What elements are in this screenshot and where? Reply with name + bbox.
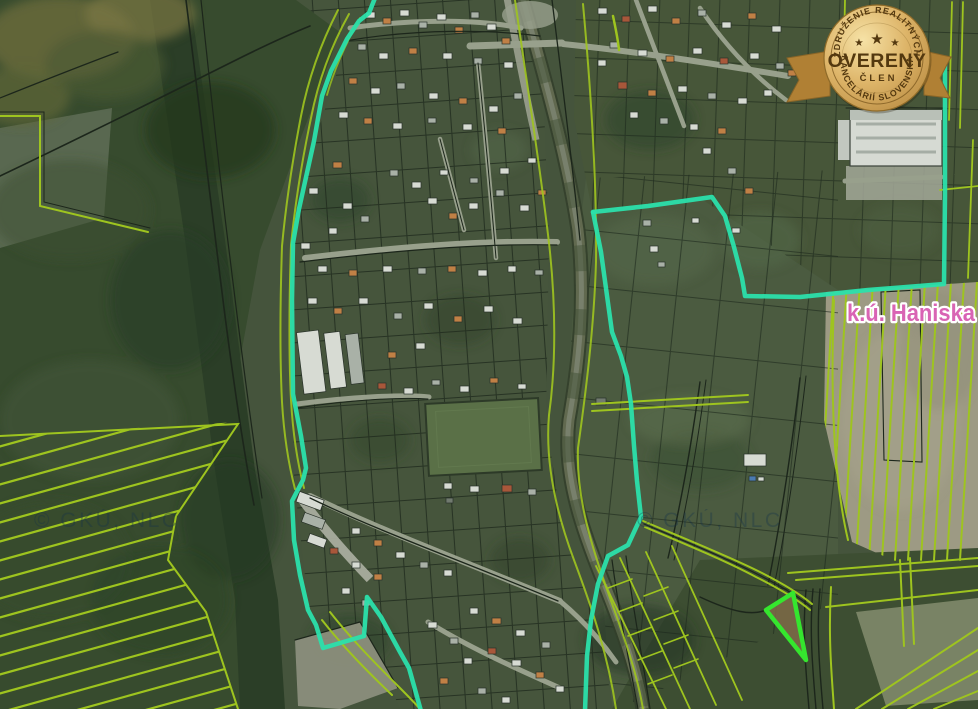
star-icon: ★ [870, 31, 883, 48]
star-icon: ★ [854, 37, 864, 49]
area-label: k.ú. Haniska [847, 300, 975, 327]
star-icon: ★ [890, 37, 900, 49]
sports-field [425, 398, 542, 476]
industrial-building [838, 110, 942, 166]
map-view[interactable]: © GKÚ, NLC © GKÚ, NLC k.ú. Haniska ZDRUŽ… [0, 0, 978, 709]
watermark-text-left: © GKÚ, NLC [34, 509, 180, 532]
badge-title: OVERENÝ [828, 48, 927, 72]
badge-member-label: ČLEN [860, 72, 898, 84]
watermark-text-right: © GKÚ, NLC [637, 509, 783, 532]
